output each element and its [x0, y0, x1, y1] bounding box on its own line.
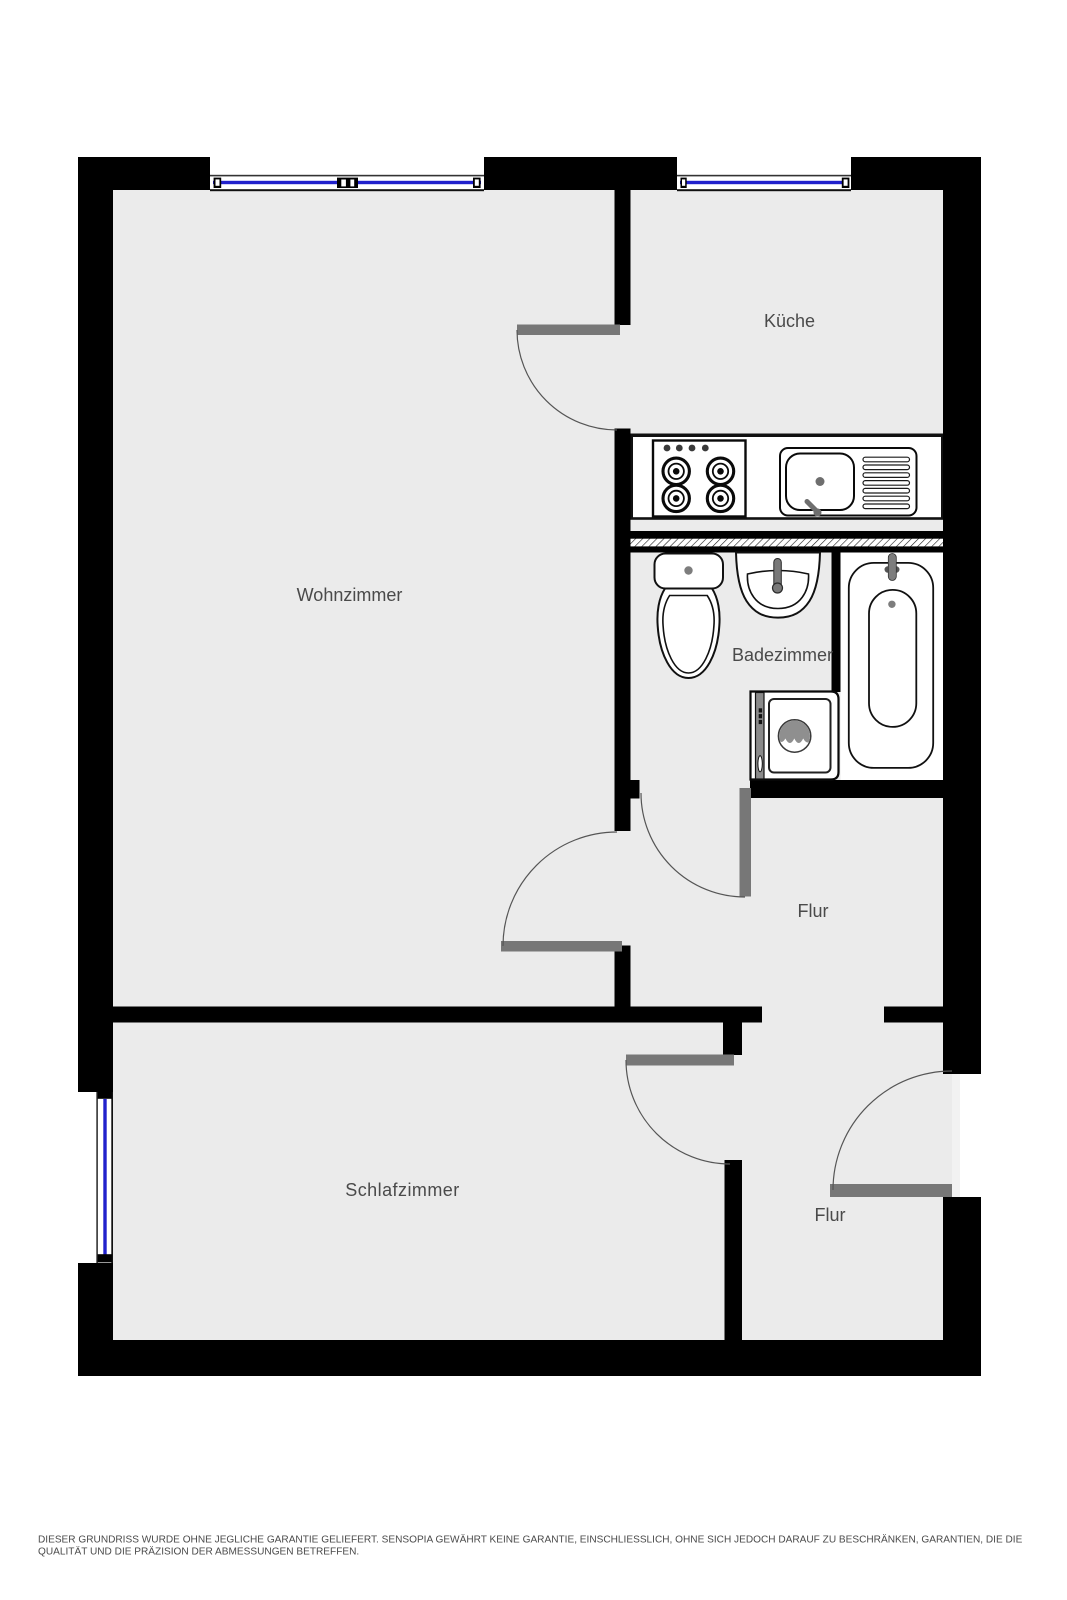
svg-text:QUALITÄT UND DIE PRÄZISION DER: QUALITÄT UND DIE PRÄZISION DER ABMESSUNG…	[38, 1546, 359, 1558]
svg-text:Flur: Flur	[798, 901, 829, 921]
svg-text:DIESER GRUNDRISS WURDE OHNE JE: DIESER GRUNDRISS WURDE OHNE JEGLICHE GAR…	[38, 1534, 1023, 1546]
svg-text:Wohnzimmer: Wohnzimmer	[297, 585, 403, 605]
svg-text:Flur: Flur	[815, 1205, 846, 1225]
svg-text:Badezimmer: Badezimmer	[732, 645, 833, 665]
svg-text:Schlafzimmer: Schlafzimmer	[345, 1180, 459, 1200]
svg-text:Küche: Küche	[764, 311, 815, 331]
